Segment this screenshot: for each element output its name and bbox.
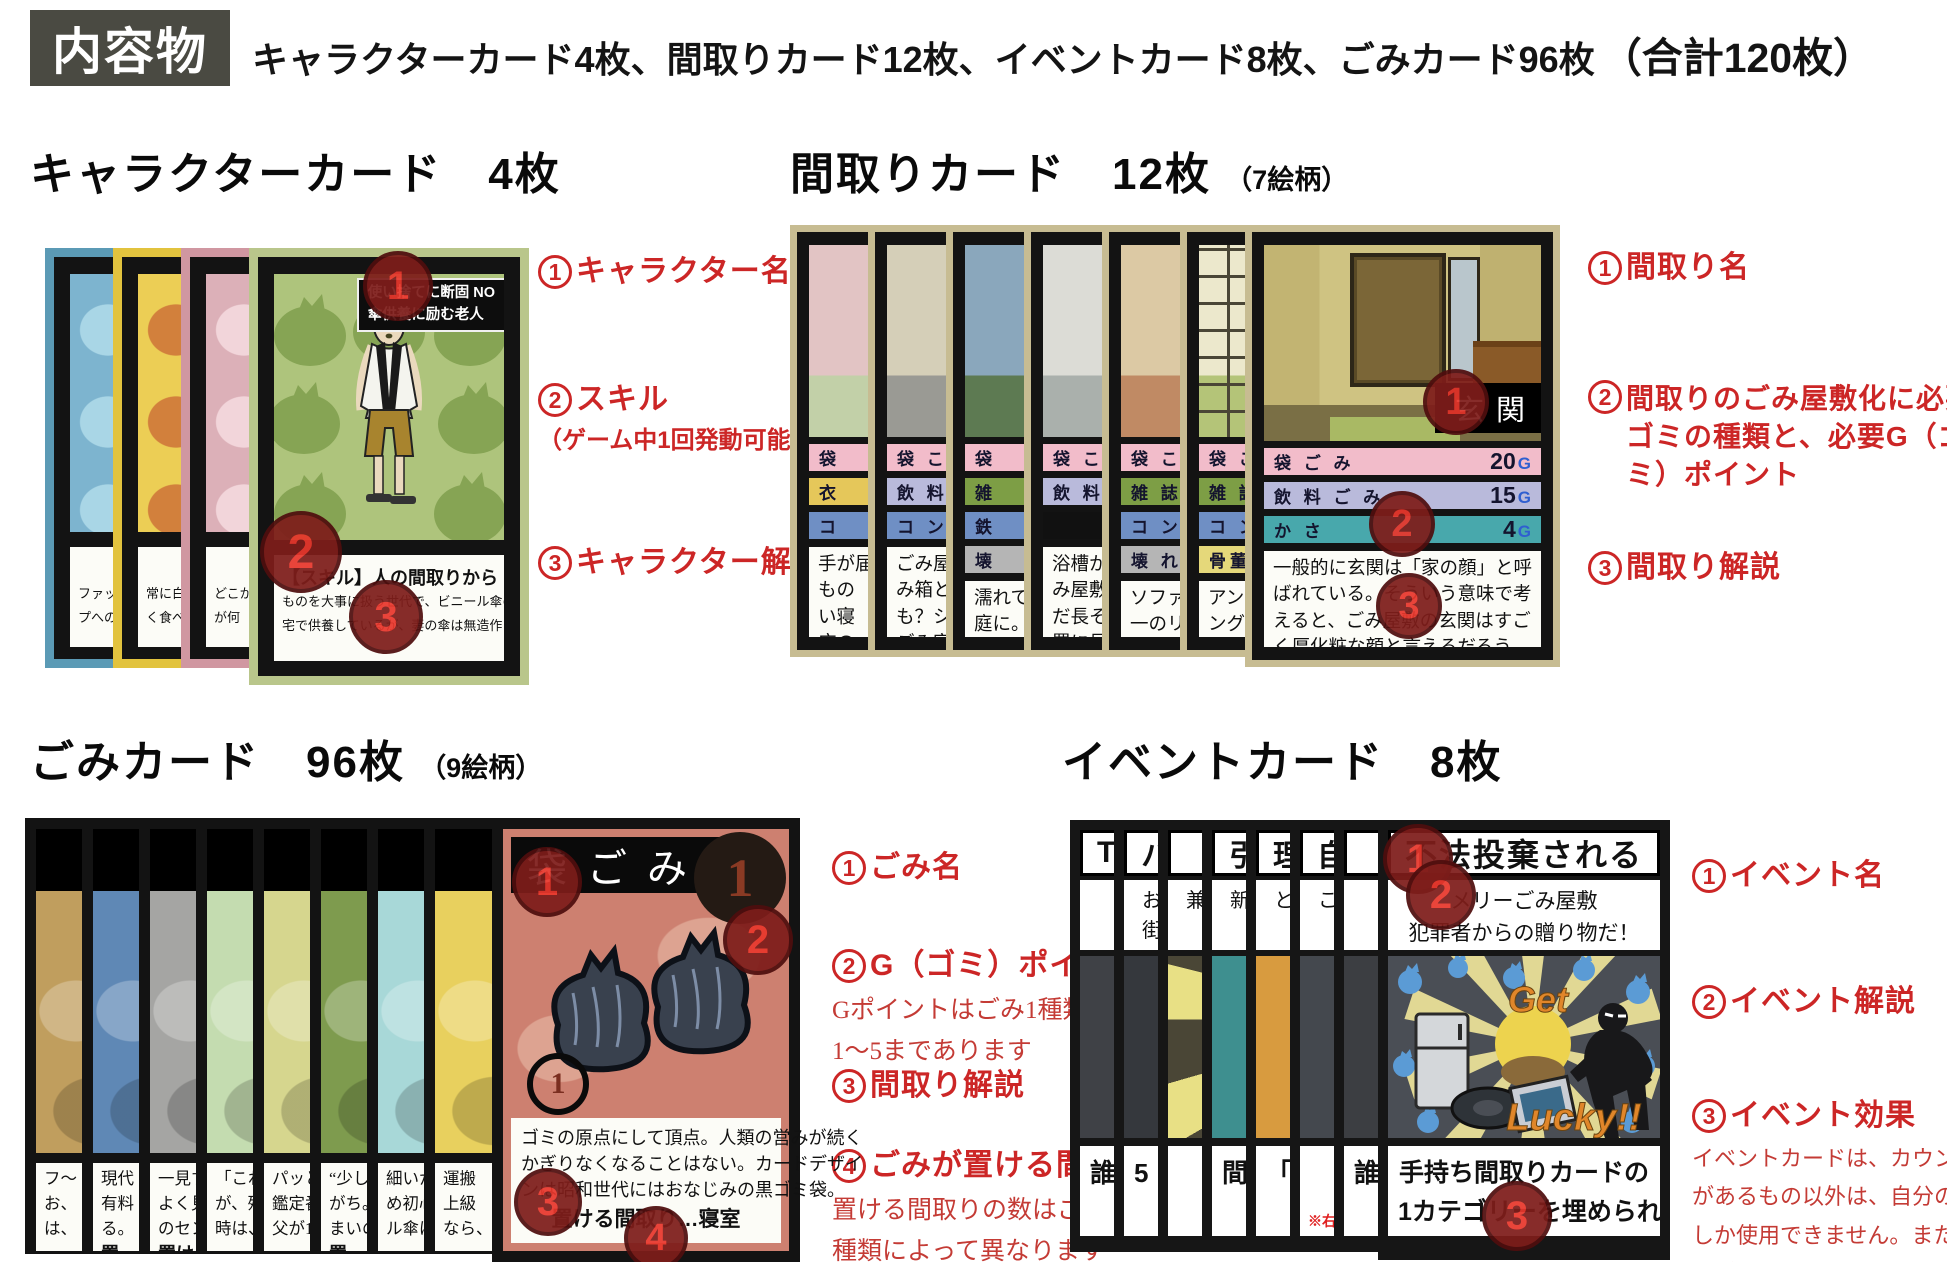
event-annotation-1: 1イベント名 <box>1692 856 1885 897</box>
g-unit: G <box>1518 522 1531 541</box>
gomi-type-label: 雑 <box>975 479 996 504</box>
gomi-type-label: コ ン <box>1131 513 1182 538</box>
g-point-value: 15G <box>1490 482 1531 509</box>
madori-annotation-2: 2間取りのごみ屋敷化に必要なゴミの種類と、必要G（ゴミ）ポイント <box>1588 380 1947 493</box>
gomi-type-label: コ <box>819 513 840 538</box>
svg-text:Get: Get <box>1508 979 1570 1020</box>
contents-label-box: 内容物 <box>30 10 230 86</box>
contents-label: 内容物 <box>52 12 208 84</box>
madori-section-heading: 間取りカード 12枚 （7絵柄） <box>790 138 1348 202</box>
circled-number-icon: 2 <box>538 383 572 417</box>
g-unit: G <box>1518 488 1531 507</box>
madori-annotation-3: 3間取り解説 <box>1588 548 1781 589</box>
marker-3-icon: 3 <box>349 580 423 654</box>
annotation-label: 間取り解説 <box>1626 548 1781 589</box>
marker-2-icon: 2 <box>723 905 793 975</box>
event-card-art: Get Lucky!! <box>1388 956 1660 1138</box>
gomi-annotation-1: 1ごみ名 <box>832 848 963 889</box>
gomi-desc-line: ゴミの原点にして頂点。人類の営みが続く <box>521 1125 771 1151</box>
gomi-heading-note: （9絵柄） <box>419 753 542 783</box>
g-point-value: 20G <box>1490 448 1531 475</box>
gomi-type-label: 袋 <box>819 445 840 470</box>
annotation-note-line: しか使用できません。また、使用後 <box>1692 1217 1947 1255</box>
gomi-card-stack: 袋ごみ 1 1 ゴミの原点にして頂点。人類の営みが続くかぎりなくなることはない。… <box>25 818 815 1262</box>
event-card-front: 不法投棄される メリーごみ屋敷 犯罪者からの贈り物だ！ <box>1378 820 1670 1260</box>
character-annotation-3: 3キャラクター解説 <box>538 543 823 584</box>
circled-number-icon: 3 <box>1692 1099 1726 1133</box>
marker-2-icon: 2 <box>1369 491 1435 557</box>
madori-card-stack: 玄関 袋 ご み20G飲 料 ご み15Gか さ4G 一般的に玄関は「家の顔」と… <box>790 225 1590 667</box>
gomi-type-label: 飲 料 ご み <box>1274 483 1384 508</box>
gomi-type-label: 袋 こ <box>1131 445 1182 470</box>
circled-number-icon: 3 <box>538 546 572 580</box>
gomi-section-heading: ごみカード 96枚 （9絵柄） <box>30 726 542 790</box>
g-unit: G <box>1518 454 1531 473</box>
annotation-note-line: があるもの以外は、自分のターンに <box>1692 1178 1947 1216</box>
annotation-label: キャラクター解説 <box>576 543 823 584</box>
annotation-note-line: イベントカードは、カウンター効果 <box>1692 1140 1947 1178</box>
thief-illustration: Get Lucky!! <box>1388 956 1660 1138</box>
gomi-annotation-3: 3間取り解説 <box>832 1066 1025 1107</box>
contents-summary-text: キャラクターカード4枚、間取りカード12枚、イベントカード8枚、ごみカード96枚 <box>252 39 1595 80</box>
circled-number-icon: 2 <box>1588 380 1622 414</box>
marker-2-icon: 2 <box>260 511 342 593</box>
marker-3-icon: 3 <box>1482 1181 1552 1251</box>
gomi-type-label: 壊 れ <box>1131 547 1182 572</box>
madori-heading-note: （7絵柄） <box>1225 165 1348 195</box>
madori-card-front: 玄関 袋 ご み20G飲 料 ご み15Gか さ4G 一般的に玄関は「家の顔」と… <box>1245 225 1560 667</box>
annotation-label: 間取り名 <box>1626 248 1750 289</box>
marker-3-icon: 3 <box>514 1168 582 1236</box>
character-annotation-note: （ゲーム中1回発動可能） <box>538 420 815 455</box>
marker-3-icon: 3 <box>1376 573 1442 639</box>
event-annotation-3: 3イベント効果 <box>1692 1096 1916 1137</box>
character-annotation-1: 1キャラクター名 <box>538 252 792 293</box>
madori-heading-text: 間取りカード 12枚 <box>790 150 1211 199</box>
event-annotation-2: 2イベント解説 <box>1692 982 1916 1023</box>
circled-number-icon: 1 <box>538 255 572 289</box>
marker-1-icon: 1 <box>363 251 433 321</box>
madori-requirement-row: 袋 ご み20G <box>1264 448 1541 475</box>
annotation-label: スキル <box>576 380 669 421</box>
rulebook-contents-page: 内容物 キャラクターカード4枚、間取りカード12枚、イベントカード8枚、ごみカー… <box>0 0 1947 1262</box>
madori-annotation-1: 1間取り名 <box>1588 248 1750 289</box>
gomi-type-label: 袋 ご み <box>1274 449 1354 474</box>
contents-summary: キャラクターカード4枚、間取りカード12枚、イベントカード8枚、ごみカード96枚… <box>252 24 1874 84</box>
gomi-type-label: 袋 <box>975 445 996 470</box>
event-card-stack: 不法投棄される メリーごみ屋敷 犯罪者からの贈り物だ！ <box>1070 820 1680 1262</box>
gomi-type-label: コ ン <box>897 513 948 538</box>
event-annotation-note: イベントカードは、カウンター効果があるもの以外は、自分のターンにしか使用できませ… <box>1692 1140 1947 1262</box>
annotation-label: キャラクター名 <box>576 252 792 293</box>
gomi-type-label: 衣 <box>819 479 840 504</box>
gomi-type-label: 壊 <box>975 547 996 572</box>
circled-number-icon: 1 <box>832 851 866 885</box>
annotation-label: イベント名 <box>1730 856 1885 897</box>
event-section-heading: イベントカード 8枚 <box>1062 726 1502 790</box>
circled-number-icon: 2 <box>1692 985 1726 1019</box>
marker-2-icon: 2 <box>1406 860 1476 930</box>
contents-total: （合計120枚） <box>1601 35 1874 81</box>
gomi-corner-point: 1 <box>527 1053 589 1115</box>
gomi-heading-text: ごみカード 96枚 <box>30 738 405 787</box>
svg-text:Lucky!!: Lucky!! <box>1506 1097 1641 1138</box>
circled-number-icon: 1 <box>1588 251 1622 285</box>
annotation-label: 間取りのごみ屋敷化に必要なゴミの種類と、必要G（ゴミ）ポイント <box>1626 380 1947 493</box>
gomi-type-label: 袋 こ <box>1053 445 1104 470</box>
circled-number-icon: 3 <box>1588 551 1622 585</box>
gomi-type-label: 飲 料 <box>897 479 948 504</box>
annotation-note-line: はゴミ山に捨ててください。 <box>1692 1255 1947 1262</box>
door-graphic <box>1350 253 1446 387</box>
marker-1-icon: 1 <box>1423 369 1489 435</box>
gomi-type-label: 鉄 <box>975 513 996 538</box>
gomi-type-label: 飲 料 <box>1053 479 1104 504</box>
circled-number-icon: 3 <box>832 1069 866 1103</box>
gomi-type-label: 袋 こ <box>897 445 948 470</box>
g-point-value: 4G <box>1503 516 1531 543</box>
annotation-label: イベント効果 <box>1730 1096 1916 1137</box>
gomi-type-label: か さ <box>1274 517 1325 542</box>
event-heading-text: イベントカード 8枚 <box>1062 738 1502 787</box>
marker-4-icon: 4 <box>624 1206 688 1262</box>
annotation-label: ごみ名 <box>870 848 963 889</box>
gomi-type-label: 雑 誌 <box>1131 479 1182 504</box>
character-section-heading: キャラクターカード 4枚 <box>30 138 561 202</box>
circled-number-icon: 1 <box>1692 859 1726 893</box>
footnote-text: ※右 <box>1308 1211 1336 1232</box>
gomi-card-front: 袋ごみ 1 1 ゴミの原点にして頂点。人類の営みが続くかぎりなくなることはない。… <box>492 818 800 1262</box>
annotation-label: イベント解説 <box>1730 982 1916 1023</box>
character-heading-text: キャラクターカード 4枚 <box>30 150 561 199</box>
marker-1-icon: 1 <box>512 847 582 917</box>
circled-number-icon: 2 <box>832 949 866 983</box>
character-card-front: 使い捨てに断固 NO 傘供養に励む老人 【スキル】人の間取りから「傘」を奪える … <box>249 248 529 685</box>
character-annotation-2: 2スキル <box>538 380 669 421</box>
madori-card-art: 玄関 <box>1264 245 1541 441</box>
annotation-label: 間取り解説 <box>870 1066 1025 1107</box>
character-card-stack: 使い捨てに断固 NO 傘供養に励む老人 【スキル】人の間取りから「傘」を奪える … <box>45 248 565 693</box>
